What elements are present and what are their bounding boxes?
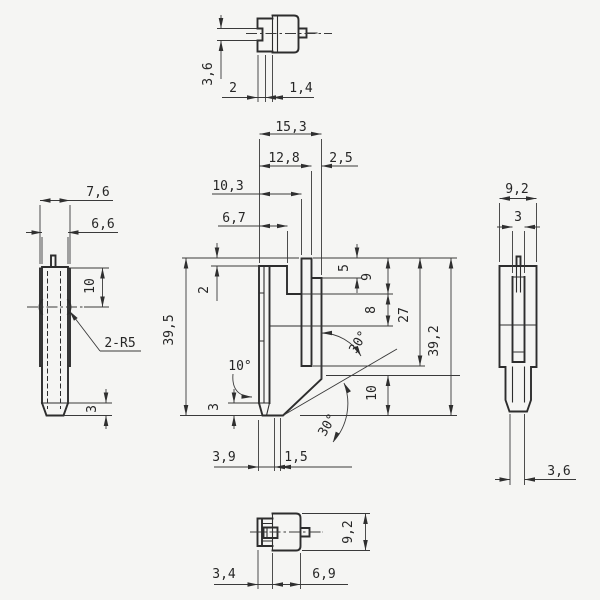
dim-front-height-right: 39,2 <box>427 325 442 356</box>
part-edge-minor <box>273 16 318 53</box>
dim-left-body-depth: 6,6 <box>91 217 114 232</box>
dim-front-arm-length: 27 <box>397 307 412 323</box>
dim-front-plate-width: 6,7 <box>222 211 245 226</box>
dim-right-tip-depth: 3,6 <box>547 464 570 479</box>
dim-front-gap-top: 5 <box>337 264 352 272</box>
dim-top-waist-width: 1,4 <box>289 81 313 96</box>
dim-bottom-body-width: 6,9 <box>312 567 335 582</box>
top-view-dimensions: 3,6 2 1,4 <box>201 15 314 102</box>
dim-top-flange-width: 2 <box>229 81 237 96</box>
dim-front-depth-lower: 8 <box>364 306 379 314</box>
hidden-line <box>48 271 61 409</box>
dim-right-slot-width: 3 <box>514 210 522 225</box>
dimension-lines <box>495 199 576 480</box>
dim-left-flange-depth: 7,6 <box>86 185 109 200</box>
part-edge-minor <box>40 269 70 404</box>
dim-left-groove-position: 10 <box>83 278 98 294</box>
left-view-outline <box>27 256 84 416</box>
dim-front-tip-offset: 3,9 <box>212 450 235 465</box>
extension-lines <box>40 205 112 416</box>
dim-front-arm-width: 12,8 <box>268 151 299 166</box>
dim-bottom-body-depth: 9,2 <box>341 520 356 543</box>
dim-front-tip-height: 3 <box>207 403 222 411</box>
dim-front-bevel-height: 10 <box>365 385 380 401</box>
part-edge <box>500 257 537 412</box>
dim-front-height-left: 39,5 <box>162 314 177 345</box>
extension-lines <box>217 29 273 103</box>
part-edge <box>258 16 307 53</box>
dim-left-radius-note: 2-R5 <box>104 336 135 351</box>
left-side-view: 7,6 6,6 10 2-R5 3 <box>26 185 141 429</box>
technical-drawing: 3,6 2 1,4 <box>0 0 600 600</box>
dimension-lines <box>26 201 141 430</box>
dim-front-land-width: 1,5 <box>284 450 307 465</box>
extension-lines <box>500 203 537 485</box>
top-view: 3,6 2 1,4 <box>201 15 332 102</box>
right-view-dimensions: 9,2 3 3,6 <box>495 182 576 485</box>
dim-top-waist-height: 3,6 <box>201 62 216 85</box>
bottom-view-outline <box>250 514 323 551</box>
dim-right-body-depth: 9,2 <box>505 182 528 197</box>
part-edge <box>40 256 70 416</box>
front-view: 15,3 12,8 2,5 10,3 6,7 2 39,5 5 9 8 27 3… <box>162 120 460 471</box>
dim-left-tip-height: 3 <box>85 405 100 413</box>
dim-front-overall-width: 15,3 <box>275 120 306 135</box>
dim-front-inner-width: 10,3 <box>212 179 243 194</box>
dim-front-tip-angle: 10° <box>228 359 251 374</box>
dim-bottom-bracket-width: 3,4 <box>212 567 236 582</box>
arrowheads <box>500 196 537 482</box>
dim-front-depth-upper: 9 <box>360 273 375 281</box>
bottom-view: 9,2 3,4 6,9 <box>212 514 370 590</box>
right-side-view: 9,2 3 3,6 <box>495 182 576 485</box>
dim-front-top-step: 2 <box>197 286 212 294</box>
part-edge-minor <box>259 266 302 416</box>
dim-front-wall-thickness: 2,5 <box>329 151 352 166</box>
front-view-outline <box>259 259 322 416</box>
dim-front-angle-upper: 30° <box>347 328 372 356</box>
top-view-outline <box>246 16 332 53</box>
part-edge <box>259 259 322 416</box>
right-view-outline <box>500 257 537 412</box>
